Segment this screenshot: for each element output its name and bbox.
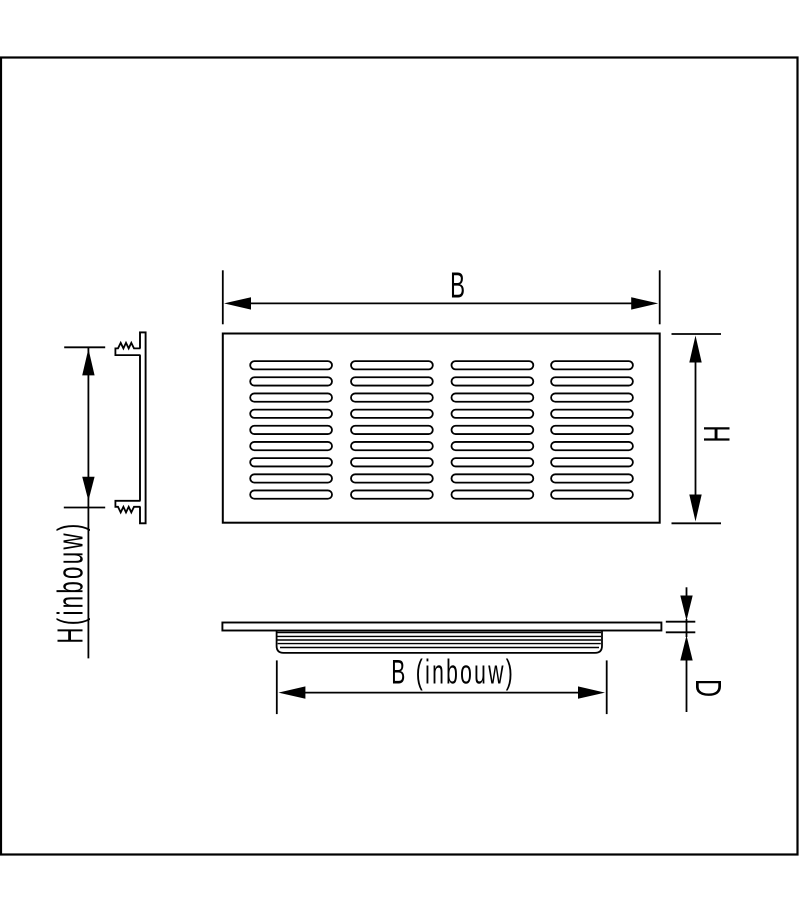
svg-text:B (inbouw): B (inbouw) [391,652,513,690]
svg-text:H: H [696,425,738,442]
svg-text:H(inbouw): H(inbouw) [51,524,91,644]
svg-text:D: D [688,679,729,697]
svg-text:B: B [450,266,465,306]
